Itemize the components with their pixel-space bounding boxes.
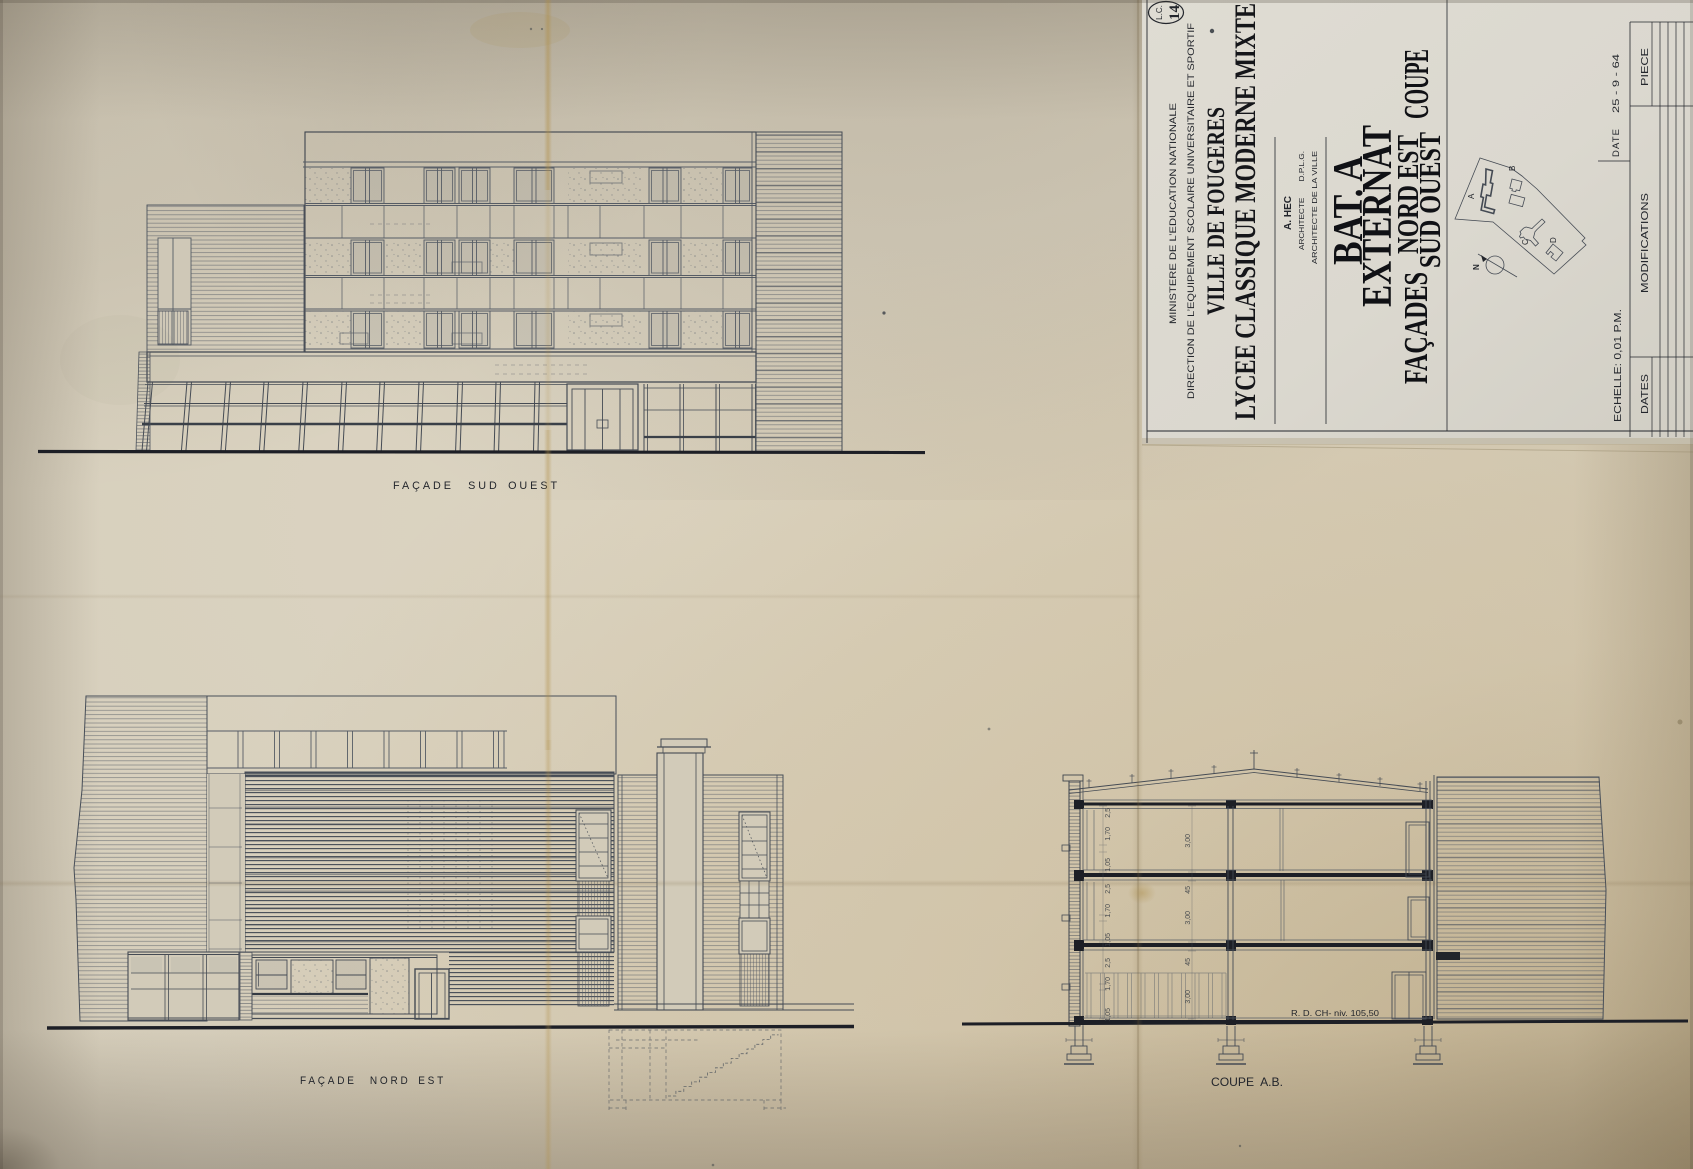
svg-text:MINISTERE DE L’EDUCATION NA: MINISTERE DE L’EDUCATION NATIONALE — [1168, 103, 1179, 324]
svg-text:B: B — [1508, 166, 1517, 171]
svg-text:ARCHITECTE D.P.L.G.: ARCHITECTE D.P.L.G. — [1299, 151, 1306, 250]
svg-text:3,00: 3,00 — [1185, 990, 1192, 1004]
svg-text:FAÇADE SUD OUEST: FAÇADE SUD OUEST — [393, 480, 560, 492]
svg-text:1,05: 1,05 — [1105, 858, 1112, 872]
svg-text:1,70: 1,70 — [1105, 904, 1112, 918]
svg-text:C: C — [1521, 239, 1530, 245]
svg-text:1,05: 1,05 — [1105, 1008, 1112, 1022]
svg-text:45: 45 — [1185, 958, 1192, 966]
svg-text:DATES: DATES — [1640, 374, 1651, 414]
svg-text:25 - 9 - 64: 25 - 9 - 64 — [1611, 54, 1622, 113]
svg-text:MODIFICATIONS: MODIFICATIONS — [1640, 193, 1651, 293]
svg-text:LYCEE CLASSIQUE MODERNE MIXTE: LYCEE CLASSIQUE MODERNE MIXTE — [1229, 3, 1262, 420]
svg-text:L.C.: L.C. — [1155, 5, 1164, 20]
svg-text:FAÇADES: FAÇADES — [1398, 272, 1435, 384]
svg-text:1,05: 1,05 — [1105, 933, 1112, 947]
svg-text:3,00: 3,00 — [1185, 911, 1192, 925]
svg-text:DATE: DATE — [1611, 129, 1622, 157]
svg-text:COUPE: COUPE — [1397, 49, 1436, 119]
svg-text:PIECE: PIECE — [1639, 48, 1651, 86]
svg-text:14: 14 — [1167, 5, 1183, 21]
svg-text:45: 45 — [1185, 886, 1192, 894]
svg-text:DIRECTION DE L’EQUIPEMENT S: DIRECTION DE L’EQUIPEMENT SCOLAIRE UNIVE… — [1186, 23, 1197, 399]
svg-text:ECHELLE: 0,01 P.M.: ECHELLE: 0,01 P.M. — [1613, 309, 1624, 422]
svg-text:3,00: 3,00 — [1185, 834, 1192, 848]
svg-text:1,70: 1,70 — [1105, 977, 1112, 991]
svg-text:A: A — [1467, 193, 1476, 199]
svg-text:R. D. CH- niv. 105,50: R. D. CH- niv. 105,50 — [1291, 1008, 1379, 1018]
svg-text:A. HEC: A. HEC — [1283, 196, 1294, 230]
svg-text:ARCHITECTE DE LA VILLE: ARCHITECTE DE LA VILLE — [1312, 151, 1319, 264]
svg-text:2,5: 2,5 — [1105, 808, 1112, 818]
svg-text:1,70: 1,70 — [1105, 827, 1112, 841]
svg-text:FAÇADE NORD EST: FAÇADE NORD EST — [300, 1075, 446, 1087]
svg-text:N: N — [1472, 264, 1481, 270]
svg-text:COUPE A.B.: COUPE A.B. — [1211, 1077, 1283, 1089]
svg-text:2,5: 2,5 — [1105, 958, 1112, 968]
svg-text:VILLE DE FOUGERES: VILLE DE FOUGERES — [1203, 107, 1230, 315]
svg-text:D: D — [1549, 237, 1558, 243]
svg-text:SUD OUEST: SUD OUEST — [1412, 132, 1447, 268]
